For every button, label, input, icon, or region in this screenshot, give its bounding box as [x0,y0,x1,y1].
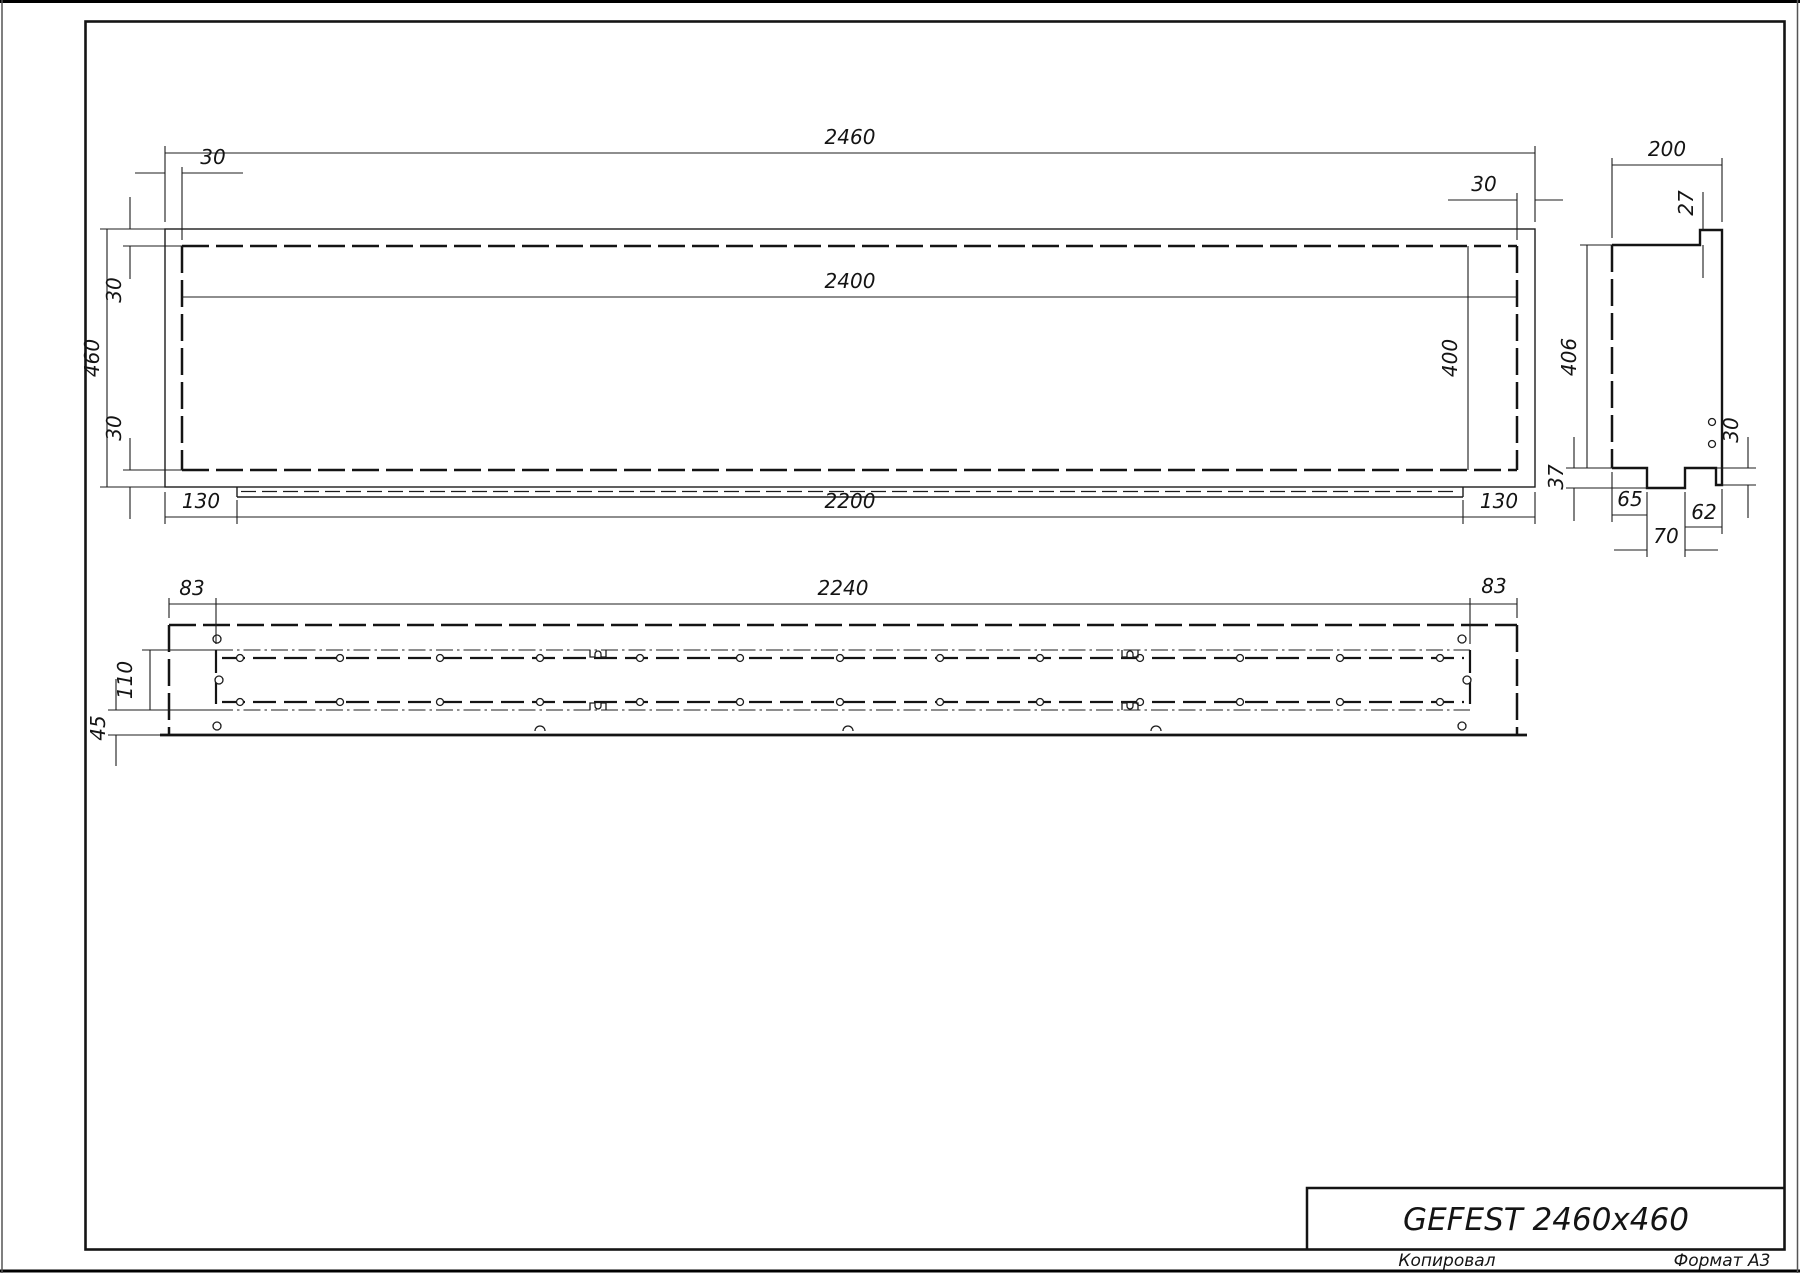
side-hole-upper [1709,419,1716,426]
drawing-border [86,22,1785,1250]
dim-plan-side-margin-right: 83 [1481,574,1506,598]
dim-plan-opening-width: 2240 [818,576,869,600]
dim-side-foot-width: 70 [1653,524,1678,548]
dim-front-border-left-top: 30 [102,277,126,302]
plan-extension-lines [108,598,1517,735]
plan-corner-holes [213,635,1471,730]
dim-side-foot-offset: 65 [1617,487,1642,511]
side-extension-lines [1566,158,1756,557]
title-block-model: GEFEST 2460x460 [1403,1202,1689,1238]
plan-channel-hidden-rows [222,658,1464,702]
dim-side-bracket-depth: 37 [1544,464,1568,490]
dim-front-bottom-inset-right: 130 [1480,489,1518,513]
dim-plan-channel-width: 110 [113,661,137,699]
side-view [1612,230,1722,488]
dim-side-hole-offset: 30 [1719,417,1743,442]
dim-front-bottom-width: 2200 [825,489,876,513]
dim-front-total-width: 2460 [825,125,876,149]
dim-front-opening-height: 400 [1438,339,1462,377]
front-view-dimensions: 2460 30 30 2400 460 30 30 400 130 2200 1… [80,125,1563,524]
plan-view [160,625,1527,735]
dim-side-top-lip: 27 [1674,190,1698,216]
page-frame [0,0,1800,1273]
dim-side-height: 406 [1557,338,1581,376]
front-extension-lines [100,146,1535,524]
dim-front-border-left-bottom: 30 [102,415,126,440]
dim-front-border-top-right: 30 [1471,172,1496,196]
side-outline [1612,230,1722,488]
plan-flange-notches [535,726,1161,731]
side-hole-lower [1709,441,1716,448]
dim-side-foot-to-edge: 62 [1691,500,1716,524]
dim-front-border-top-left: 30 [200,145,225,169]
dim-front-opening-width: 2400 [825,269,876,293]
footer-format-label: Формат А3 [1674,1251,1771,1271]
front-outer-outline [165,229,1535,487]
drawing-sheet: 2460 30 30 2400 460 30 30 400 130 2200 1… [0,0,1800,1273]
dim-front-bottom-inset-left: 130 [182,489,220,513]
dim-plan-side-margin-left: 83 [179,576,204,600]
footer-copied-label: Копировал [1398,1251,1495,1271]
plan-view-dimensions: 83 2240 83 110 45 [86,574,1517,766]
title-block: GEFEST 2460x460 Копировал Формат А3 [1307,1188,1785,1271]
dim-front-total-height: 460 [80,339,104,377]
technical-drawing-canvas: 2460 30 30 2400 460 30 30 400 130 2200 1… [0,0,1800,1273]
plan-hidden-outline [169,625,1517,735]
dim-plan-flange-depth: 45 [86,715,110,740]
dim-side-depth: 200 [1648,137,1686,161]
side-view-dimensions: 200 27 406 37 65 62 70 30 [1544,137,1756,557]
